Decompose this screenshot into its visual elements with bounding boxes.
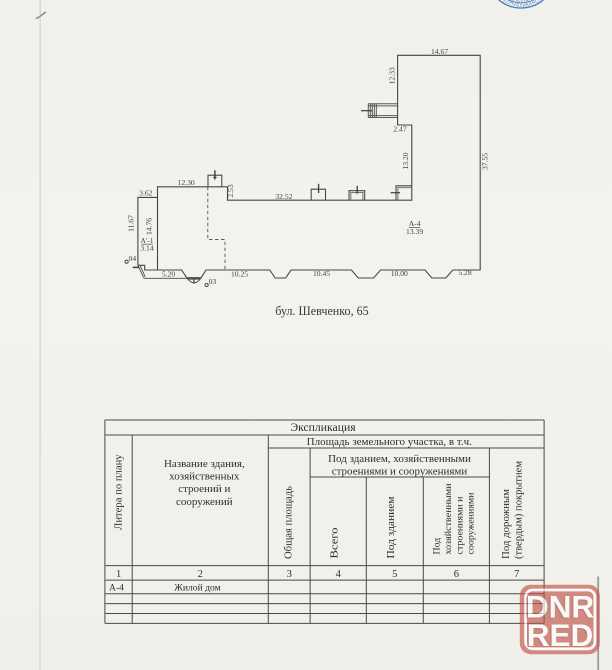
svg-text:хозяйственных: хозяйственных [169, 471, 240, 483]
svg-text:03: 03 [209, 277, 217, 286]
svg-text:сооружений: сооружений [176, 496, 233, 508]
svg-text:2.47: 2.47 [393, 124, 406, 133]
svg-text:10.25: 10.25 [231, 270, 248, 279]
svg-text:7: 7 [514, 569, 519, 580]
svg-text:(твердым) покрытием: (твердым) покрытием [514, 460, 525, 559]
svg-text:04: 04 [129, 254, 137, 263]
svg-text:строениями и сооружениями: строениями и сооружениями [332, 465, 468, 477]
svg-text:10.45: 10.45 [313, 269, 330, 278]
svg-text:Под: Под [432, 538, 443, 555]
svg-text:Всего: Всего [330, 528, 341, 559]
svg-text:Литера по плану: Литера по плану [113, 454, 124, 530]
svg-text:4: 4 [336, 569, 342, 580]
svg-text:5.20: 5.20 [162, 269, 175, 278]
svg-text:11.67: 11.67 [126, 215, 135, 232]
svg-text:1: 1 [116, 569, 121, 580]
svg-text:RED: RED [527, 617, 594, 653]
svg-text:строений и: строений и [178, 483, 230, 495]
svg-text:строениями и: строениями и [455, 496, 466, 555]
svg-text:6: 6 [454, 569, 459, 580]
svg-text:10.00: 10.00 [391, 269, 408, 278]
svg-text:бул. Шевченко, 65: бул. Шевченко, 65 [275, 304, 368, 318]
svg-text:12.30: 12.30 [178, 178, 195, 187]
svg-text:13.39: 13.39 [406, 227, 423, 236]
svg-text:Общая площадь: Общая площадь [284, 486, 295, 559]
svg-text:3.62: 3.62 [139, 189, 152, 198]
svg-text:Площадь земельного участка, в: Площадь земельного участка, в т.ч. [307, 436, 472, 448]
svg-text:Название здания,: Название здания, [164, 458, 245, 470]
svg-text:3: 3 [287, 569, 292, 580]
svg-text:А-4: А-4 [109, 583, 124, 594]
svg-text:2: 2 [198, 569, 203, 580]
svg-text:Под дорожным: Под дорожным [501, 488, 512, 559]
svg-text:министерство юстиции донецкой: министерство юстиции донецкой народной [0, 0, 549, 4]
svg-text:5: 5 [392, 569, 397, 580]
svg-text:37.55: 37.55 [481, 153, 490, 170]
svg-text:13.20: 13.20 [401, 152, 410, 169]
svg-text:Под зданием, хозяйственными: Под зданием, хозяйственными [328, 453, 471, 465]
svg-text:сооружениями: сооружениями [466, 492, 477, 555]
svg-text:3.14: 3.14 [140, 243, 153, 252]
svg-text:• РЕСПУБЛИКАНСКОЕ • БЮРО • ТЕХ: • РЕСПУБЛИКАНСКОЕ • БЮРО • ТЕХНИЧЕСКОЙ •… [0, 0, 554, 8]
svg-text:32.52: 32.52 [275, 192, 292, 201]
svg-text:хозяйственными: хозяйственными [443, 483, 454, 555]
svg-text:Экспликация: Экспликация [290, 421, 356, 434]
svg-text:12.33: 12.33 [388, 67, 397, 84]
svg-text:Жилой дом: Жилой дом [174, 583, 220, 594]
svg-text:14.76: 14.76 [144, 218, 153, 235]
svg-text:14.67: 14.67 [431, 47, 448, 56]
svg-text:5.28: 5.28 [458, 268, 471, 277]
svg-text:2.53: 2.53 [226, 184, 235, 197]
svg-text:Под зданием: Под зданием [386, 496, 397, 558]
